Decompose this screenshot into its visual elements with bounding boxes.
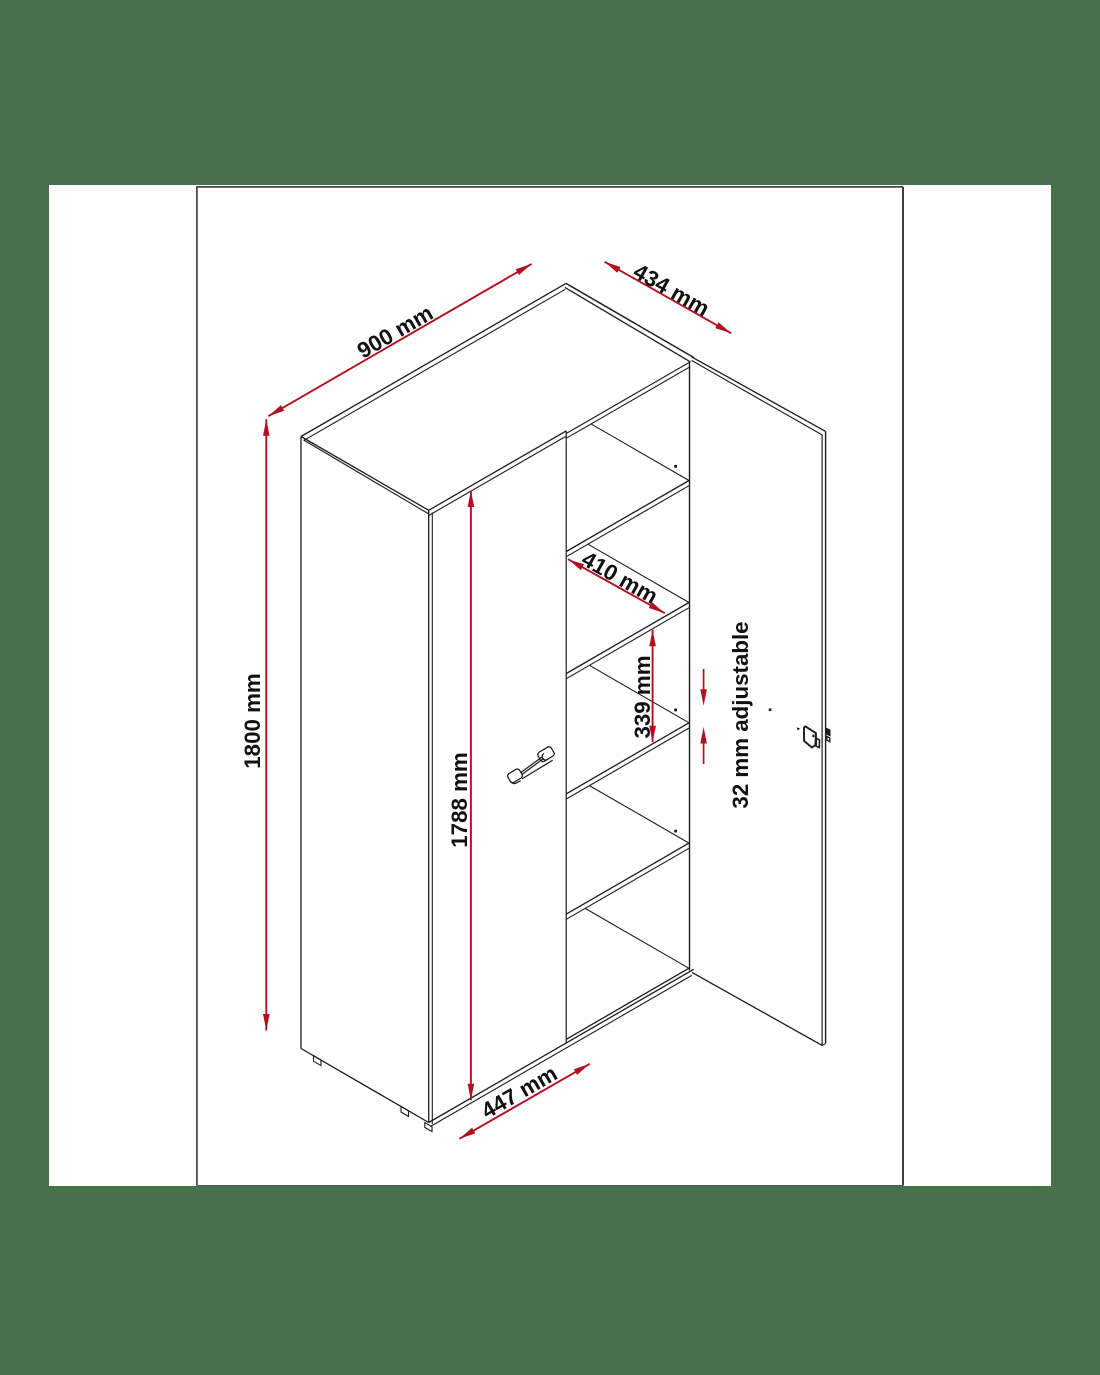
svg-text:1788 mm: 1788 mm — [447, 752, 472, 847]
svg-text:1800 mm: 1800 mm — [240, 673, 265, 768]
svg-text:32 mm adjustable: 32 mm adjustable — [728, 621, 753, 808]
svg-text:339 mm: 339 mm — [630, 655, 655, 738]
